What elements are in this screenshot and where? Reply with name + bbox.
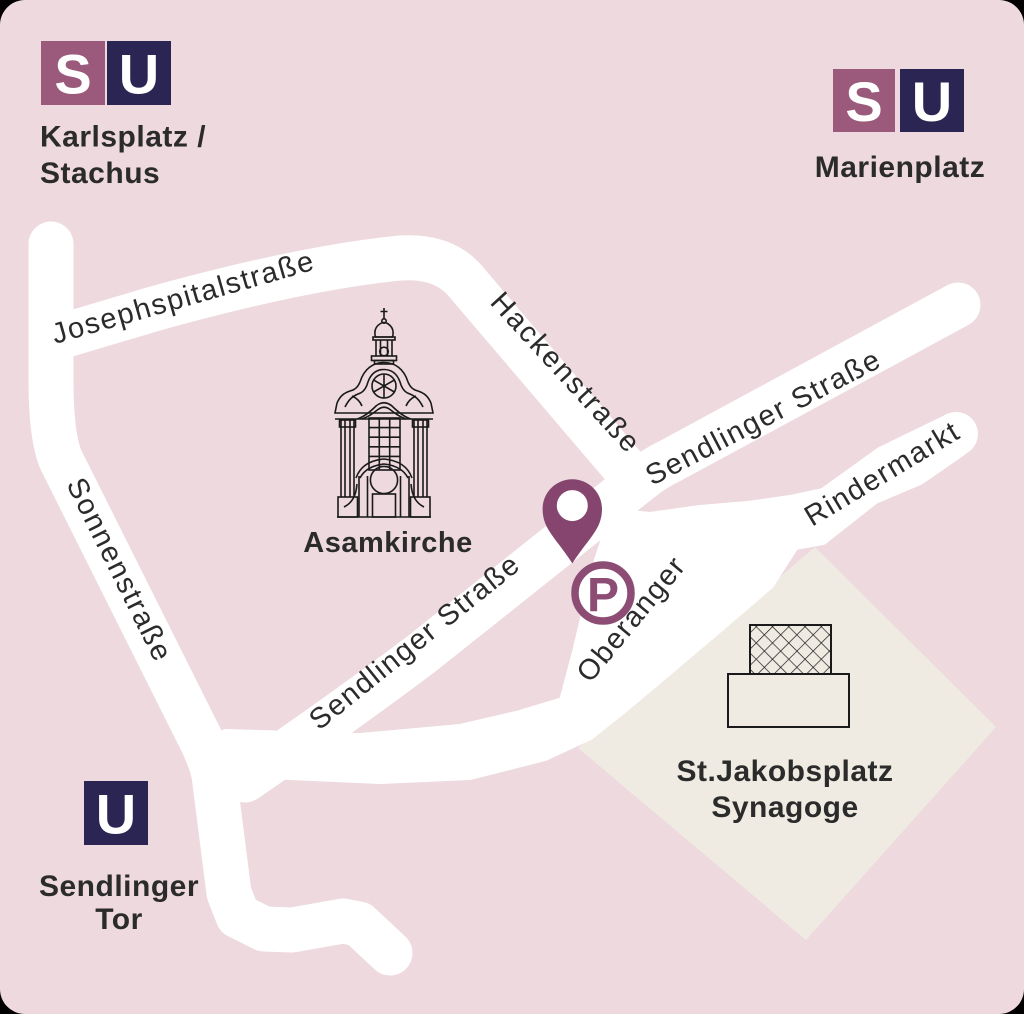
svg-text:U: U xyxy=(912,70,952,133)
svg-text:S: S xyxy=(845,70,882,133)
svg-text:Sendlinger: Sendlinger xyxy=(39,870,199,903)
svg-text:U: U xyxy=(96,783,136,846)
svg-text:Marienplatz: Marienplatz xyxy=(815,151,986,184)
svg-text:P: P xyxy=(587,569,619,622)
svg-text:Asamkirche: Asamkirche xyxy=(303,527,472,559)
svg-text:Tor: Tor xyxy=(95,903,143,936)
svg-text:S: S xyxy=(54,43,91,106)
svg-text:Karlsplatz /: Karlsplatz / xyxy=(40,121,206,154)
svg-text:Synagoge: Synagoge xyxy=(711,791,858,824)
svg-text:U: U xyxy=(119,43,159,106)
svg-text:St.Jakobsplatz: St.Jakobsplatz xyxy=(676,755,893,788)
svg-text:Stachus: Stachus xyxy=(40,157,160,190)
